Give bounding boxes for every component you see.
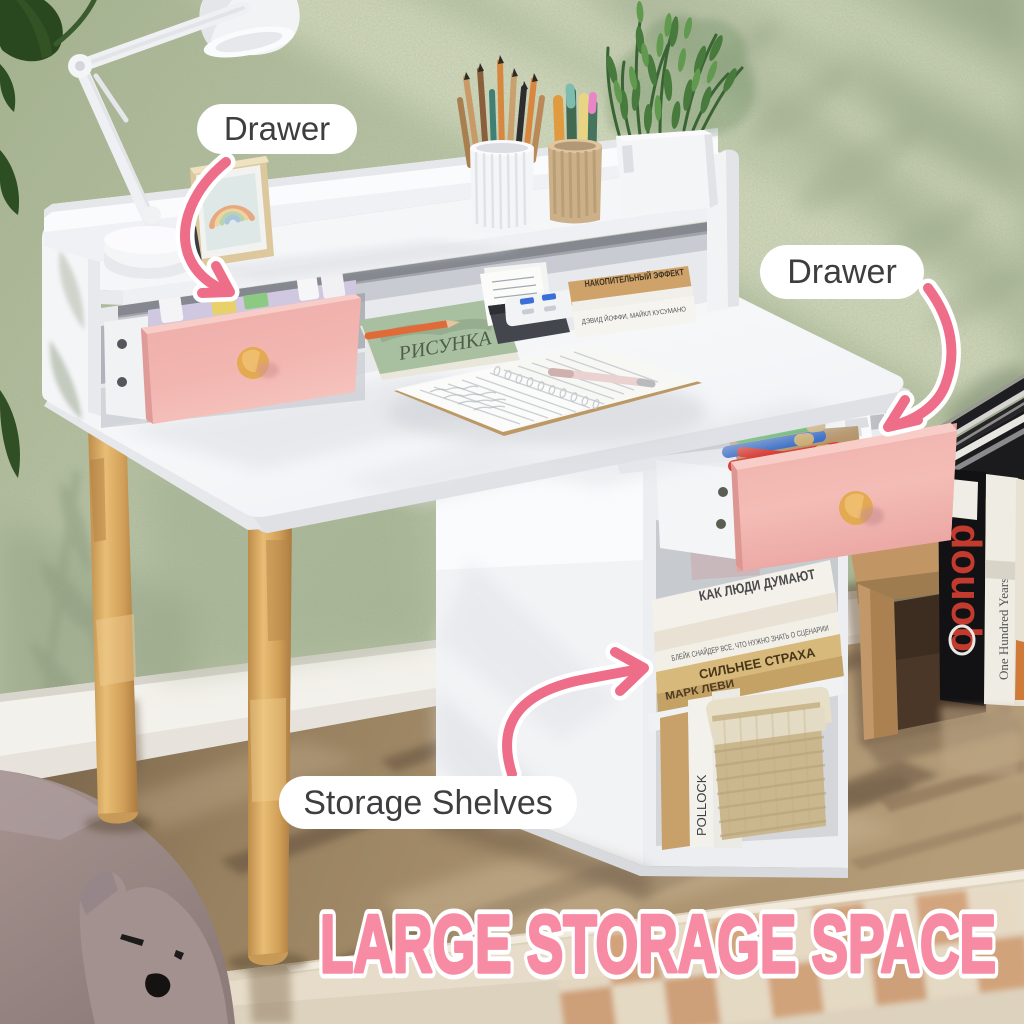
svg-text:Drawer: Drawer: [787, 253, 897, 291]
svg-text:Storage Shelves: Storage Shelves: [303, 784, 553, 822]
svg-text:One Hundred Years: One Hundred Years: [996, 578, 1011, 680]
svg-text:LARGE STORAGE SPACE: LARGE STORAGE SPACE: [320, 899, 996, 990]
svg-text:qonop: qonop: [936, 524, 983, 652]
svg-text:POLLOCK: POLLOCK: [694, 774, 709, 836]
svg-text:Drawer: Drawer: [224, 110, 330, 147]
